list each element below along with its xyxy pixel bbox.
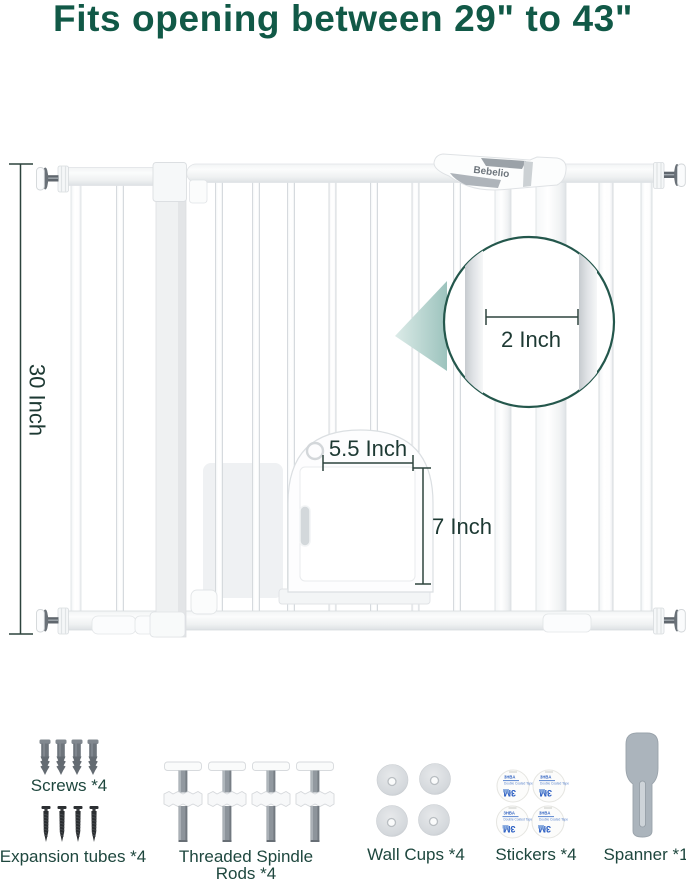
svg-text:5.5 Inch: 5.5 Inch [329,436,407,461]
svg-text:2 Inch: 2 Inch [501,327,561,352]
svg-text:Screws *4: Screws *4 [31,776,108,795]
svg-text:Double Coated Tape: Double Coated Tape [504,782,533,786]
svg-text:Spanner *1: Spanner *1 [603,845,686,864]
svg-text:Expansion tubes *4: Expansion tubes *4 [0,847,146,866]
svg-text:Fits opening between 29" to 43: Fits opening between 29" to 43" [53,0,633,39]
svg-text:3HBA: 3HBA [504,775,515,780]
svg-text:30 Inch: 30 Inch [25,364,50,436]
svg-text:Wall Cups *4: Wall Cups *4 [367,845,465,864]
svg-text:7 Inch: 7 Inch [432,514,492,539]
svg-text:Rods *4: Rods *4 [216,864,276,879]
svg-text:Stickers *4: Stickers *4 [495,845,576,864]
